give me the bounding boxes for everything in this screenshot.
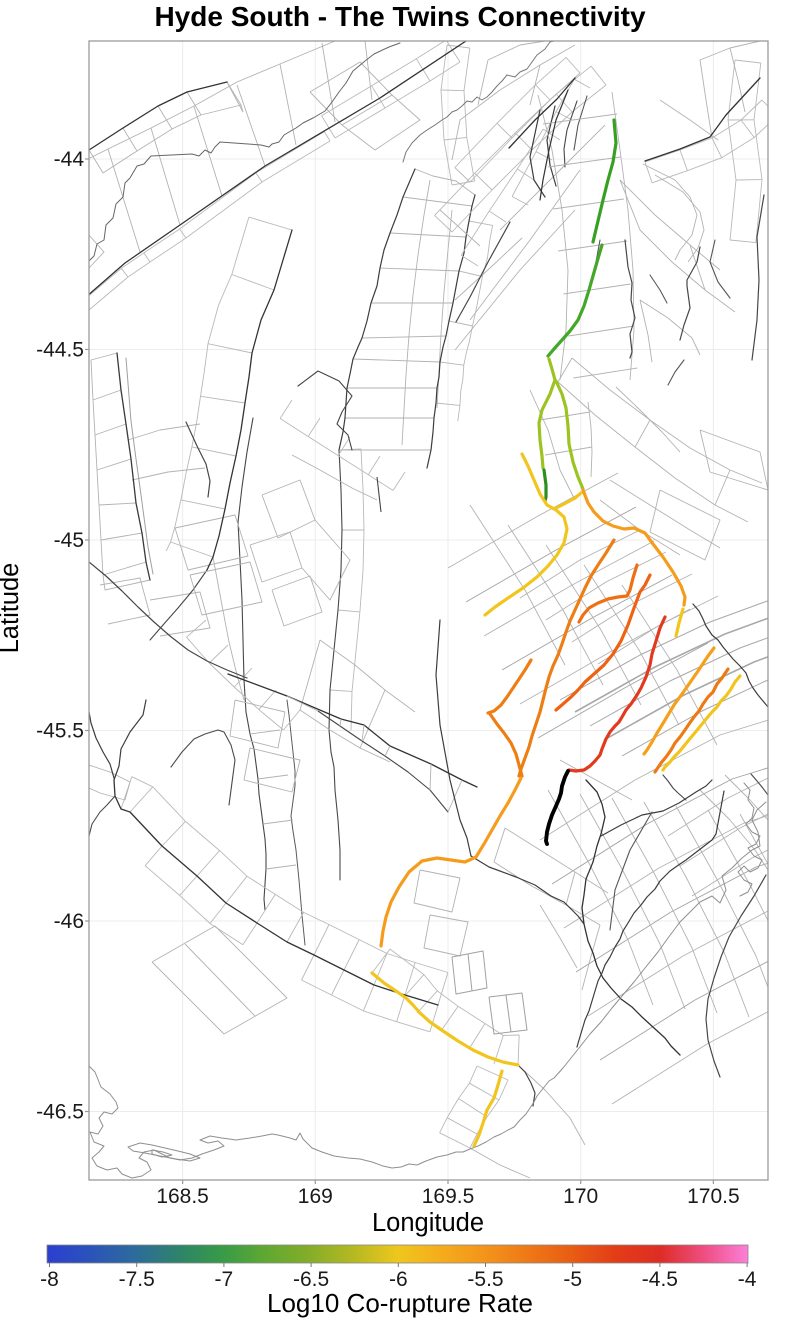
svg-text:-5: -5: [563, 1268, 582, 1291]
svg-text:169: 169: [298, 1185, 333, 1208]
svg-text:Latitude: Latitude: [0, 563, 24, 654]
svg-text:-4: -4: [738, 1268, 757, 1291]
svg-text:-46: -46: [54, 910, 84, 933]
svg-text:-4.5: -4.5: [642, 1268, 678, 1291]
svg-text:170.5: 170.5: [687, 1185, 740, 1208]
svg-text:-44: -44: [54, 148, 85, 171]
svg-text:-8: -8: [40, 1268, 59, 1291]
svg-text:-45.5: -45.5: [36, 720, 84, 743]
svg-text:169.5: 169.5: [422, 1185, 475, 1208]
svg-text:-44.5: -44.5: [36, 339, 84, 362]
svg-text:Longitude: Longitude: [372, 1209, 484, 1237]
svg-text:-45: -45: [54, 529, 84, 552]
svg-text:Hyde South - The Twins Connect: Hyde South - The Twins Connectivity: [154, 1, 645, 32]
svg-text:-7.5: -7.5: [119, 1268, 155, 1291]
svg-text:-46.5: -46.5: [36, 1101, 84, 1124]
svg-text:168.5: 168.5: [156, 1185, 209, 1208]
svg-text:Log10 Co-rupture Rate: Log10 Co-rupture Rate: [267, 1288, 533, 1318]
svg-text:-7: -7: [215, 1268, 234, 1291]
svg-text:170: 170: [563, 1185, 598, 1208]
